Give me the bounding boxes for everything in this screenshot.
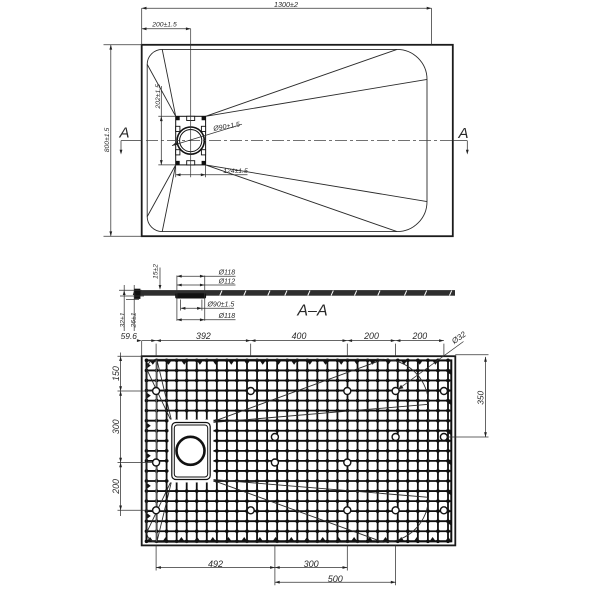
svg-text:Ø118: Ø118 <box>218 269 236 276</box>
svg-text:300: 300 <box>111 419 121 434</box>
svg-text:800±1.5: 800±1.5 <box>104 128 111 153</box>
svg-text:202±1.5: 202±1.5 <box>155 84 162 110</box>
svg-text:300: 300 <box>304 559 319 569</box>
svg-text:150: 150 <box>111 366 121 381</box>
svg-text:392: 392 <box>196 331 211 341</box>
svg-text:124±1.5: 124±1.5 <box>223 168 248 175</box>
svg-text:1300±2: 1300±2 <box>274 0 298 9</box>
svg-text:400: 400 <box>292 331 307 341</box>
svg-text:26±1: 26±1 <box>130 312 137 328</box>
svg-text:200±1.5: 200±1.5 <box>151 22 177 29</box>
svg-text:A–A: A–A <box>296 303 327 320</box>
svg-text:A: A <box>118 125 129 142</box>
svg-text:200: 200 <box>111 479 121 495</box>
svg-text:Ø118: Ø118 <box>218 313 236 320</box>
svg-text:Ø90±1.5: Ø90±1.5 <box>206 302 234 309</box>
svg-text:350: 350 <box>476 390 486 404</box>
svg-text:200: 200 <box>363 331 379 341</box>
svg-text:200: 200 <box>411 331 427 341</box>
svg-text:A: A <box>457 125 468 142</box>
svg-text:Ø112: Ø112 <box>218 278 236 285</box>
svg-text:492: 492 <box>208 559 223 569</box>
svg-text:500: 500 <box>328 574 343 584</box>
svg-text:59.6: 59.6 <box>121 331 138 341</box>
svg-text:32±1: 32±1 <box>120 312 127 327</box>
svg-text:15±2: 15±2 <box>152 264 159 279</box>
